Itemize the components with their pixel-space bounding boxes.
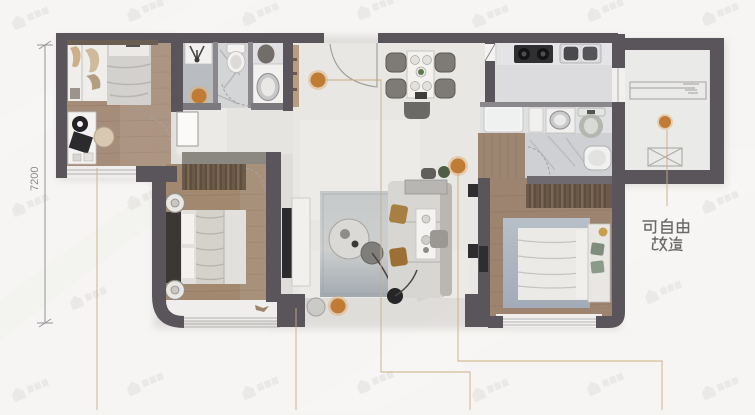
svg-text:7200: 7200 <box>29 167 41 191</box>
